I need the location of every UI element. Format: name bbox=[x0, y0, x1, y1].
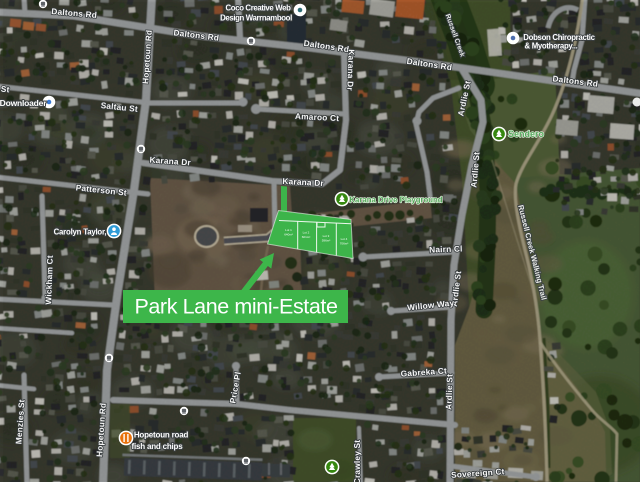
svg-text:Lot 2: Lot 2 bbox=[303, 231, 310, 235]
svg-text:Karana Drive Playground: Karana Drive Playground bbox=[349, 196, 442, 205]
svg-text:& Myotherapy...: & Myotherapy... bbox=[525, 42, 578, 51]
svg-text:Nairn Cl: Nairn Cl bbox=[429, 243, 463, 254]
svg-text:Ardlie St: Ardlie St bbox=[443, 374, 454, 410]
svg-text:601m²: 601m² bbox=[302, 235, 311, 239]
svg-text:Carolyn Taylor,: Carolyn Taylor, bbox=[54, 228, 107, 237]
svg-text:Karana Dr: Karana Dr bbox=[345, 49, 356, 91]
svg-text:Lot 3: Lot 3 bbox=[323, 234, 330, 238]
svg-text:706m²: 706m² bbox=[340, 242, 349, 246]
svg-text:St: St bbox=[0, 84, 10, 95]
svg-text:Park Lane mini-Estate: Park Lane mini-Estate bbox=[134, 295, 337, 319]
svg-text:Hopetoun road: Hopetoun road bbox=[134, 431, 189, 440]
svg-text:Crawley St: Crawley St bbox=[352, 440, 362, 482]
svg-text:596m²: 596m² bbox=[322, 239, 331, 243]
svg-text:Lot 1: Lot 1 bbox=[285, 228, 292, 232]
svg-text:Design Warrnambool: Design Warrnambool bbox=[220, 14, 292, 23]
svg-text:fish and chips: fish and chips bbox=[132, 442, 184, 451]
svg-text:Coco Creative Web: Coco Creative Web bbox=[226, 4, 292, 13]
svg-text:640m²: 640m² bbox=[284, 233, 293, 237]
svg-text:Sendero: Sendero bbox=[508, 129, 545, 139]
svg-text:Lot 4: Lot 4 bbox=[341, 237, 348, 241]
svg-text:Downloader: Downloader bbox=[0, 98, 47, 108]
svg-text:Wickham Ct: Wickham Ct bbox=[43, 255, 55, 305]
